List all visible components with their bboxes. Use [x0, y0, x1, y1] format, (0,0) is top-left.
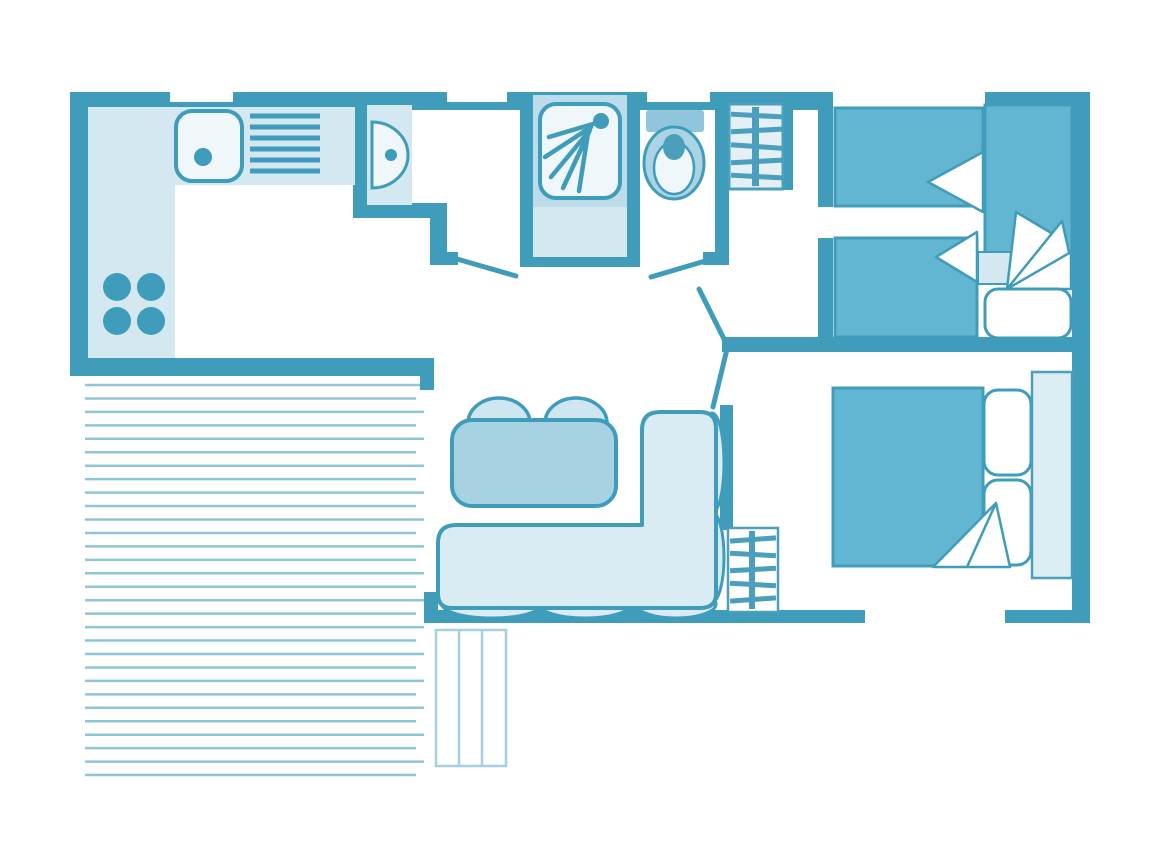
- wall-shower-right: [627, 95, 640, 267]
- kitchen-sink: [176, 111, 242, 181]
- washbasin-nook: [367, 105, 412, 205]
- window-notch: [647, 92, 710, 102]
- steps-outline: [436, 630, 506, 766]
- wall-bedroom1-left-lower: [818, 238, 833, 339]
- door-leaf-bathroom: [651, 259, 712, 277]
- wall-washbasin-bottom: [353, 203, 447, 218]
- shower: [533, 95, 627, 257]
- living-dining: [438, 398, 724, 618]
- floor-plan: [0, 0, 1158, 868]
- toilet: [644, 110, 704, 199]
- wall-kitchen-bottom-cap: [420, 358, 434, 390]
- wall-hall-door-stub: [430, 252, 458, 265]
- window-notch: [170, 92, 233, 102]
- terrace-planks: [85, 385, 424, 775]
- wardrobe-shelf-living: [728, 528, 778, 612]
- wall-shower-bottom-bar: [533, 257, 627, 267]
- door-leaf-corridor: [699, 289, 727, 345]
- shower-head: [593, 113, 609, 129]
- wardrobe-shelf-hall: [729, 104, 783, 189]
- wall-shower-left: [520, 95, 533, 267]
- wall-washbasin-left: [353, 100, 367, 206]
- sink-drain: [194, 148, 212, 166]
- door-leaf-hall: [457, 259, 516, 276]
- toilet-flush: [663, 134, 685, 160]
- dining-table: [452, 420, 616, 506]
- wall-bedroom1-left-upper: [818, 106, 833, 207]
- bedroom-2: [833, 372, 1072, 578]
- headboard-shelf: [1032, 372, 1072, 578]
- door-leaf-bedroom2: [713, 349, 727, 407]
- window-notch: [447, 92, 507, 102]
- pillow: [984, 390, 1031, 475]
- wall-left: [70, 92, 88, 376]
- terrace-steps: [436, 630, 506, 766]
- bedroom-1: [835, 105, 1072, 338]
- kitchen: [88, 107, 355, 358]
- shower-mat: [533, 207, 627, 257]
- washbasin-drain: [385, 149, 397, 161]
- window-opening-bedroom2: [865, 610, 1005, 623]
- wall-right: [1072, 92, 1090, 622]
- floor-plan-page: [0, 0, 1158, 868]
- pillow: [985, 289, 1071, 338]
- wall-living-bottom-cap: [424, 592, 438, 612]
- wall-toilet-right: [715, 92, 729, 264]
- door-swings: [457, 259, 727, 407]
- wall-kitchen-bottom: [70, 358, 433, 376]
